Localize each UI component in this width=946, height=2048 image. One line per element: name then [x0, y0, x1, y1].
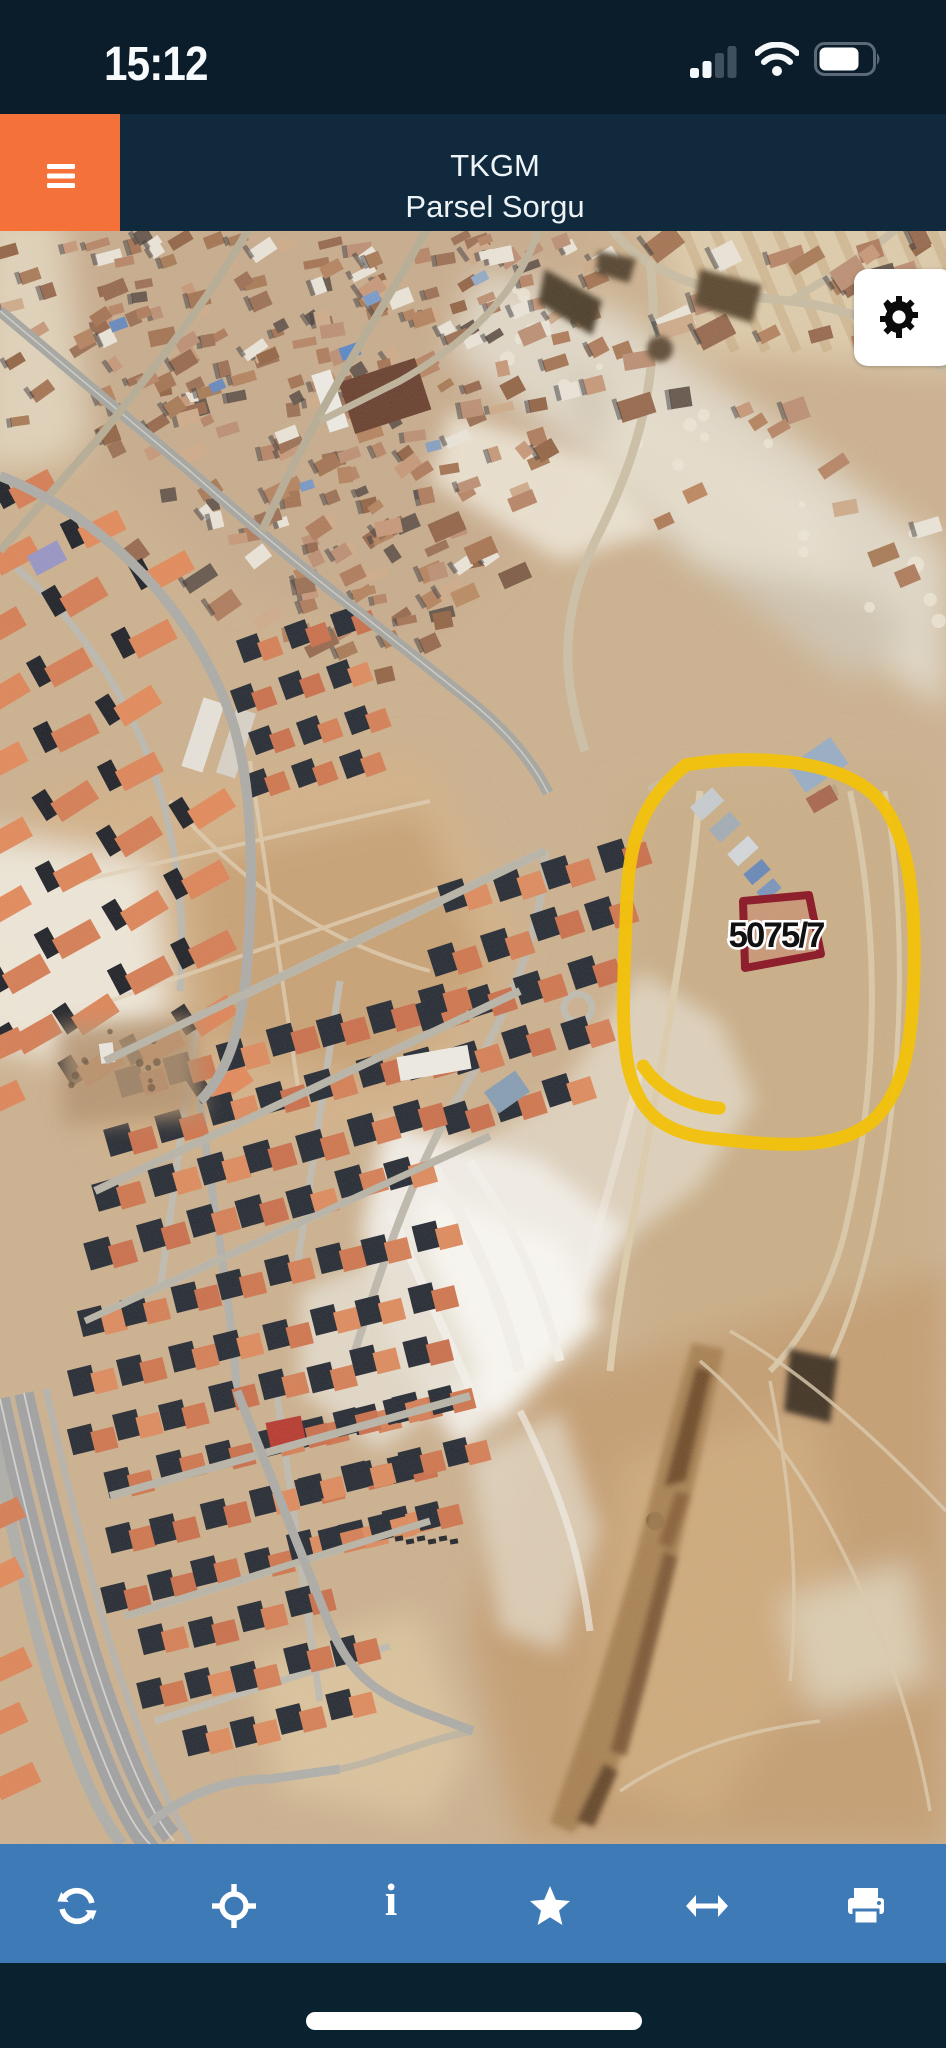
svg-text:5075/7: 5075/7 [728, 916, 824, 955]
